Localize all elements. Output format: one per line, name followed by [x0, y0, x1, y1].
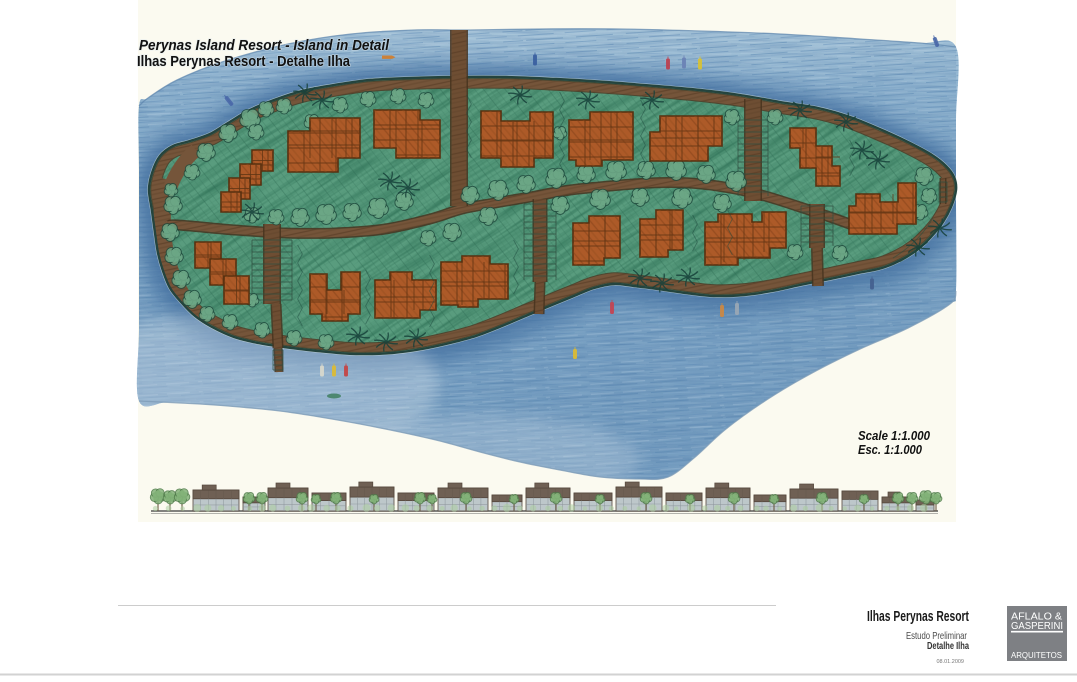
svg-text:08.01.2009: 08.01.2009	[936, 659, 964, 665]
svg-text:Esc. 1:1.000: Esc. 1:1.000	[858, 443, 922, 457]
svg-text:Perynas Island Resort - Island: Perynas Island Resort - Island in Detail	[139, 37, 390, 54]
svg-text:Ilhas Perynas Resort: Ilhas Perynas Resort	[867, 609, 969, 625]
svg-text:Scale 1:1.000: Scale 1:1.000	[858, 429, 930, 443]
svg-text:Ilhas Perynas Resort - Detalhe: Ilhas Perynas Resort - Detalhe Ilha	[137, 53, 351, 70]
svg-text:GASPERINI: GASPERINI	[1011, 620, 1063, 632]
svg-text:ARQUITETOS: ARQUITETOS	[1011, 650, 1062, 660]
svg-text:Detalhe Ilha: Detalhe Ilha	[927, 640, 969, 652]
